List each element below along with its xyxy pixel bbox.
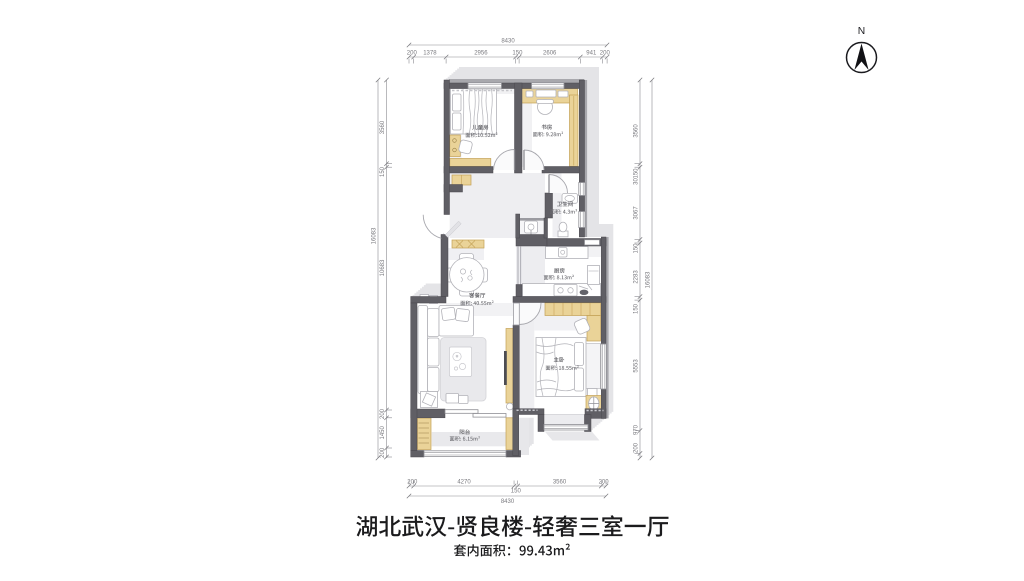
svg-text:200: 200 (380, 408, 386, 419)
svg-text:200: 200 (407, 51, 418, 57)
svg-text:30: 30 (634, 178, 640, 185)
svg-text:200: 200 (599, 480, 610, 486)
svg-text:3560: 3560 (553, 480, 567, 486)
svg-text:1450: 1450 (380, 425, 386, 439)
svg-text:200: 200 (600, 51, 611, 57)
svg-text:2283: 2283 (634, 270, 640, 284)
svg-text:N: N (858, 26, 865, 37)
svg-text:16083: 16083 (646, 271, 652, 288)
svg-text:150: 150 (380, 166, 386, 177)
svg-text:8430: 8430 (501, 39, 515, 45)
svg-text:16083: 16083 (372, 227, 378, 244)
svg-text:5553: 5553 (634, 359, 640, 373)
svg-text:150: 150 (634, 243, 640, 254)
svg-text:150: 150 (634, 303, 640, 314)
svg-text:1378: 1378 (423, 51, 437, 57)
svg-text:150: 150 (512, 51, 523, 57)
svg-text:200: 200 (380, 447, 386, 458)
svg-text:8430: 8430 (501, 499, 515, 505)
svg-text:3560: 3560 (380, 120, 386, 134)
svg-text:3560: 3560 (634, 124, 640, 138)
svg-text:200: 200 (634, 442, 640, 453)
svg-text:4270: 4270 (457, 480, 471, 486)
svg-text:941: 941 (586, 51, 597, 57)
svg-text:2956: 2956 (474, 51, 488, 57)
svg-text:970: 970 (634, 424, 640, 435)
svg-text:3067: 3067 (634, 206, 640, 220)
svg-text:150: 150 (634, 168, 640, 179)
svg-text:10683: 10683 (380, 259, 386, 276)
svg-text:150: 150 (511, 489, 522, 495)
svg-text:2606: 2606 (543, 51, 557, 57)
